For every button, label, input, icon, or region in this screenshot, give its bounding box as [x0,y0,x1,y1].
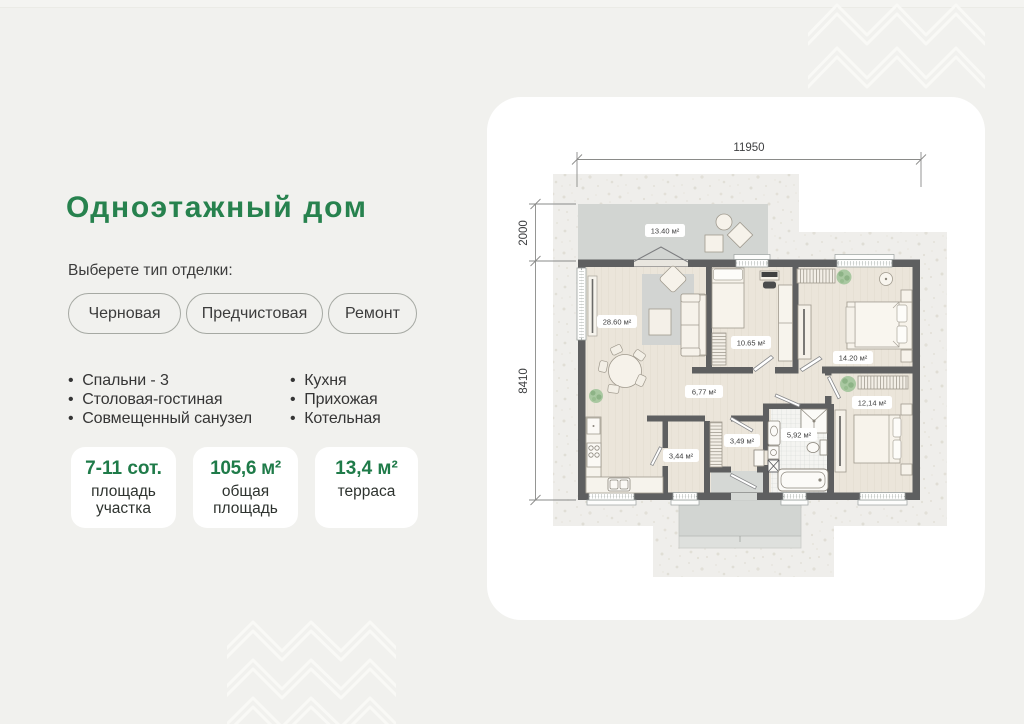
svg-text:12,14 м²: 12,14 м² [858,399,887,408]
svg-text:8410: 8410 [518,368,530,394]
svg-text:14.20 м²: 14.20 м² [839,354,868,363]
svg-text:3,44 м²: 3,44 м² [669,452,694,461]
svg-text:5,92 м²: 5,92 м² [787,431,812,440]
svg-text:28.60 м²: 28.60 м² [603,318,632,327]
svg-text:13.40 м²: 13.40 м² [651,227,680,236]
svg-text:10.65 м²: 10.65 м² [737,339,766,348]
svg-text:6,77 м²: 6,77 м² [692,388,717,397]
svg-text:3,49 м²: 3,49 м² [730,437,755,446]
svg-text:11950: 11950 [733,142,764,154]
svg-text:2000: 2000 [518,220,530,246]
